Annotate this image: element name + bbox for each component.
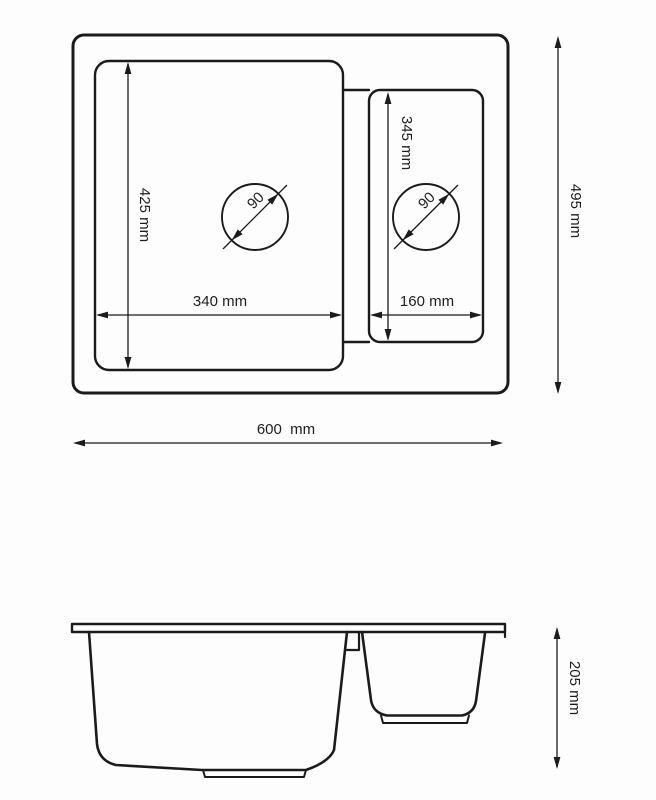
dim-half-bowl-length-arrow-up	[385, 92, 392, 104]
side-rim-outline	[72, 624, 505, 632]
half-drain-diameter-label: 90	[415, 189, 439, 213]
dim-main-bowl-width-arrow-left	[96, 312, 108, 319]
main-bowl-outline	[95, 61, 343, 370]
side-view: 205 mm	[72, 624, 583, 777]
main-drain-diameter-label: 90	[244, 189, 268, 213]
dim-half-bowl-width: 160 mm	[370, 293, 482, 318]
top-view: 90 90 425 mm 340 mm	[73, 35, 584, 446]
dim-bowl-depth-arrow-up	[554, 627, 561, 639]
side-main-bowl-profile	[89, 632, 347, 770]
sink-technical-drawing: 90 90 425 mm 340 mm	[0, 0, 656, 800]
dim-overall-width-arrow-right	[491, 440, 503, 447]
dim-overall-width-arrow-left	[73, 440, 85, 447]
dim-half-bowl-width-arrow-left	[370, 312, 382, 319]
dim-half-bowl-length-label: 345 mm	[398, 116, 415, 170]
main-bowl-drain: 90	[222, 184, 288, 250]
dim-main-bowl-length-label: 425 mm	[136, 188, 153, 242]
dim-main-bowl-length-arrow-up	[125, 62, 132, 74]
dim-overall-depth-label: 495 mm	[567, 184, 584, 238]
half-bowl-drain: 90	[393, 184, 459, 250]
dim-main-bowl-width: 340 mm	[96, 293, 342, 318]
dim-overall-depth-arrow-up	[555, 36, 562, 48]
dim-main-bowl-width-label: 340 mm	[193, 293, 247, 310]
dim-overall-width-label: 600 mm	[257, 421, 315, 438]
dim-main-bowl-width-arrow-right	[330, 312, 342, 319]
dim-overall-depth: 495 mm	[555, 36, 584, 394]
dim-main-bowl-length: 425 mm	[125, 62, 153, 369]
dim-bowl-depth-arrow-down	[554, 757, 561, 769]
dim-bowl-depth-label: 205 mm	[566, 661, 583, 715]
dim-half-bowl-length-arrow-down	[385, 329, 392, 341]
drawing-svg: 90 90 425 mm 340 mm	[0, 0, 656, 800]
dim-half-bowl-width-label: 160 mm	[400, 293, 454, 310]
side-half-bowl-profile	[362, 632, 485, 716]
dim-overall-width: 600 mm	[73, 421, 503, 446]
side-bowl-divider	[347, 632, 359, 650]
dim-overall-depth-arrow-down	[555, 382, 562, 394]
dim-half-bowl-width-arrow-right	[470, 312, 482, 319]
dim-bowl-depth: 205 mm	[554, 627, 583, 769]
dim-main-bowl-length-arrow-down	[125, 357, 132, 369]
